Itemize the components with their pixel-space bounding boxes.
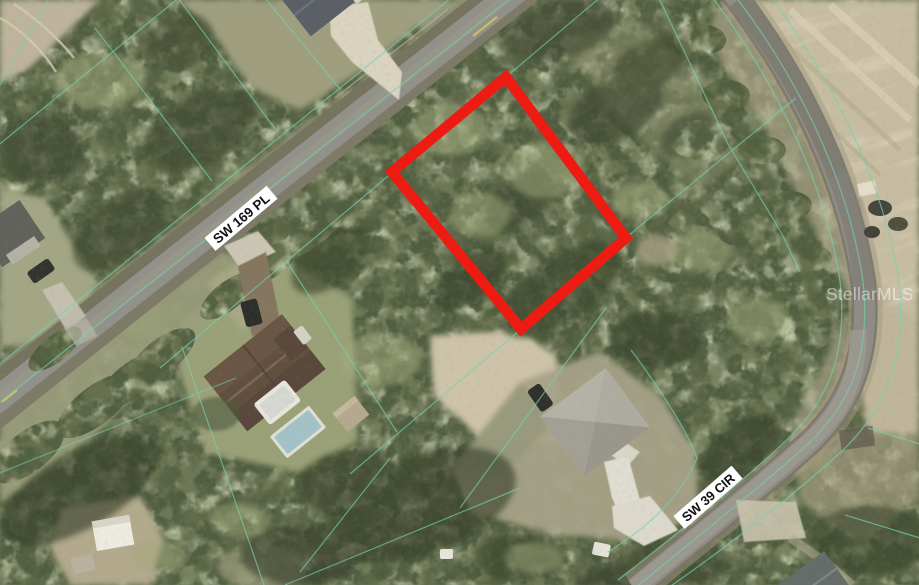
svg-text:StellarMLS: StellarMLS (826, 284, 914, 304)
